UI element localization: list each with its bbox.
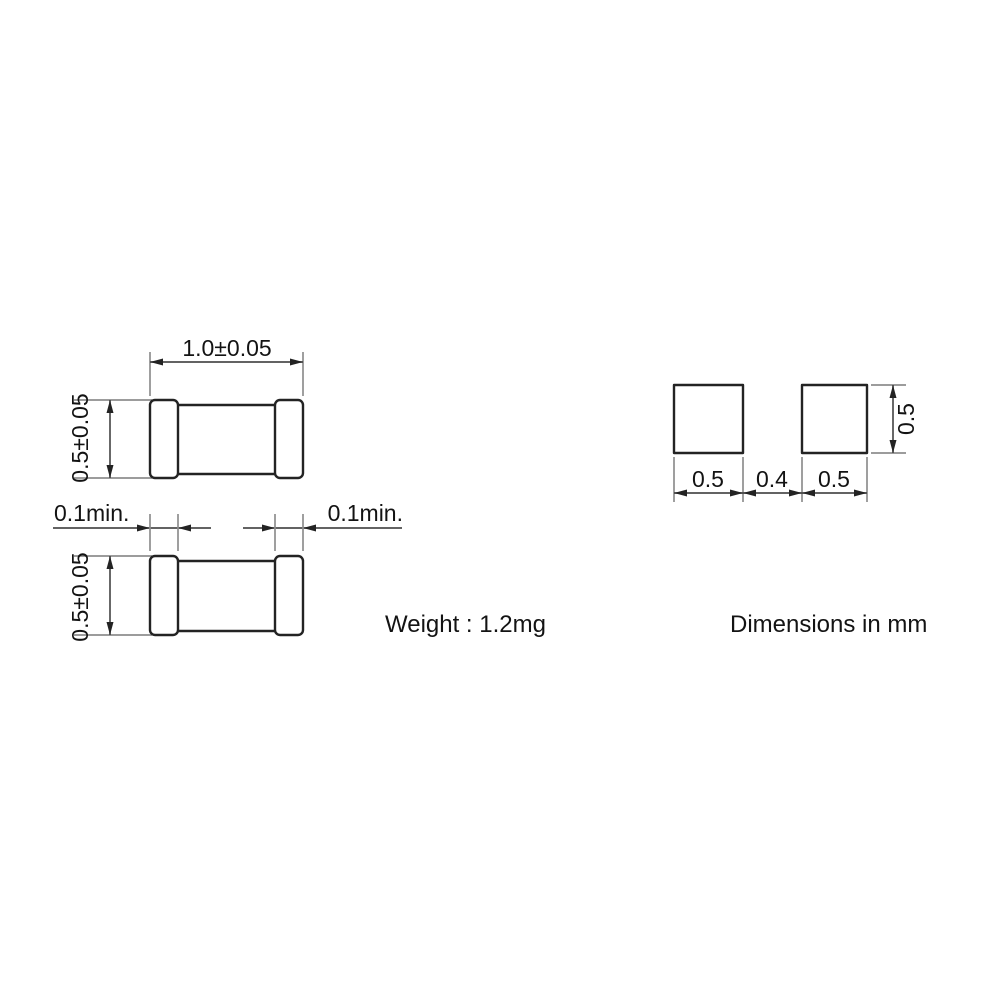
left-margin-dimension-label: 0.1min.	[54, 500, 129, 526]
notes: Weight : 1.2mg Dimensions in mm	[385, 611, 927, 638]
arrowhead-left-icon	[303, 525, 316, 532]
arrowhead-left-icon	[674, 490, 687, 497]
weight-note: Weight : 1.2mg	[385, 611, 546, 638]
arrowhead-down-icon	[107, 465, 114, 478]
terminal-cap-right	[275, 400, 303, 478]
left-pad-width-label: 0.5	[692, 466, 724, 492]
right-margin-dimension-label: 0.1min.	[328, 500, 403, 526]
arrowhead-right-icon	[262, 525, 275, 532]
solder-pad-left	[674, 385, 743, 453]
arrowhead-left-icon	[150, 359, 163, 366]
pad-gap-label: 0.4	[756, 466, 788, 492]
pad-height-label: 0.5	[893, 403, 919, 435]
arrowhead-right-icon	[789, 490, 802, 497]
length-dimension-label: 1.0±0.05	[182, 335, 271, 361]
height-dimension-label: 0.5±0.05	[67, 393, 93, 482]
terminal-cap-left	[150, 400, 178, 478]
ceramic-body	[176, 561, 277, 631]
terminal-cap-right	[275, 556, 303, 635]
arrowhead-down-icon	[890, 440, 897, 453]
land-pattern: 0.5 0.4 0.5 0.5	[674, 385, 919, 502]
drawing-svg: 1.0±0.05 0.5±0.05 0.1min. 0.1min.	[0, 0, 1000, 1000]
arrowhead-right-icon	[854, 490, 867, 497]
units-note: Dimensions in mm	[730, 611, 927, 638]
datasheet-dimension-drawing: 1.0±0.05 0.5±0.05 0.1min. 0.1min.	[0, 0, 1000, 1000]
ceramic-body	[176, 405, 277, 474]
arrowhead-up-icon	[107, 556, 114, 569]
arrowhead-down-icon	[107, 622, 114, 635]
arrowhead-left-icon	[802, 490, 815, 497]
arrowhead-left-icon	[178, 525, 191, 532]
chip-top-view: 1.0±0.05 0.5±0.05	[67, 335, 303, 483]
arrowhead-right-icon	[290, 359, 303, 366]
solder-pad-right	[802, 385, 867, 453]
chip-side-view: 0.1min. 0.1min. 0.5±0.05	[53, 500, 403, 642]
arrowhead-right-icon	[137, 525, 150, 532]
right-pad-width-label: 0.5	[818, 466, 850, 492]
arrowhead-left-icon	[743, 490, 756, 497]
arrowhead-up-icon	[890, 385, 897, 398]
height-dimension-label: 0.5±0.05	[67, 552, 93, 641]
arrowhead-up-icon	[107, 400, 114, 413]
terminal-cap-left	[150, 556, 178, 635]
arrowhead-right-icon	[730, 490, 743, 497]
